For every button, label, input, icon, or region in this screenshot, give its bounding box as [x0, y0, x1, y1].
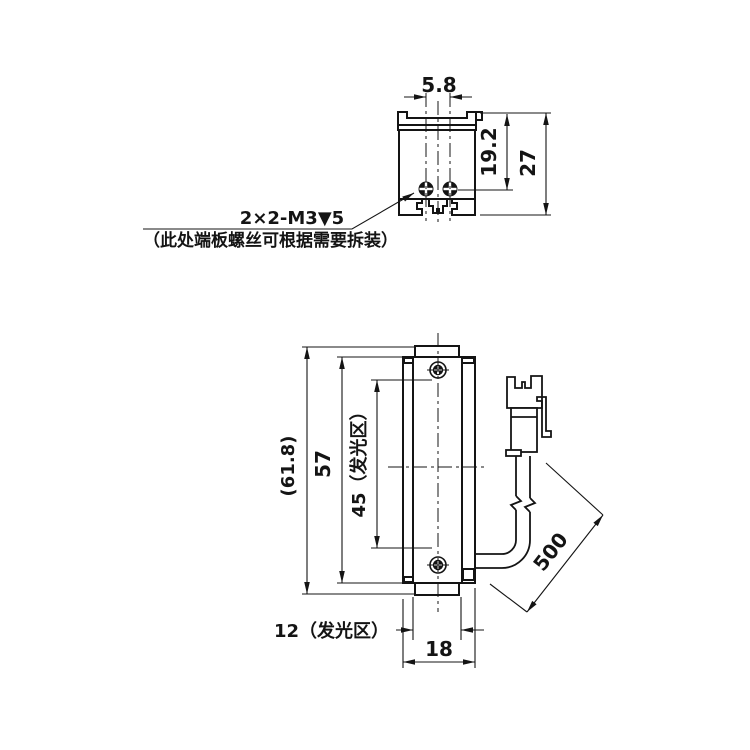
dim-label: 45（发光区） — [348, 402, 370, 517]
thread-callout-label: 2×2-M3▼5 — [240, 208, 344, 229]
dim-label: 12（发光区） — [274, 620, 389, 642]
dim-label: (61.8) — [278, 436, 299, 497]
engineering-drawing: 5.8 19.2 27 2×2-M3▼5 （此处端板螺丝可根据需要拆装） — [0, 0, 750, 750]
drawing-canvas: 5.8 19.2 27 2×2-M3▼5 （此处端板螺丝可根据需要拆装） — [0, 0, 750, 750]
dim-label: 18 — [425, 637, 453, 661]
dim-label: 19.2 — [477, 127, 501, 176]
dim-label: 27 — [516, 149, 540, 177]
dim-label: 57 — [311, 450, 335, 478]
dim-label: 5.8 — [421, 73, 456, 97]
note-label: （此处端板螺丝可根据需要拆装） — [143, 230, 398, 251]
